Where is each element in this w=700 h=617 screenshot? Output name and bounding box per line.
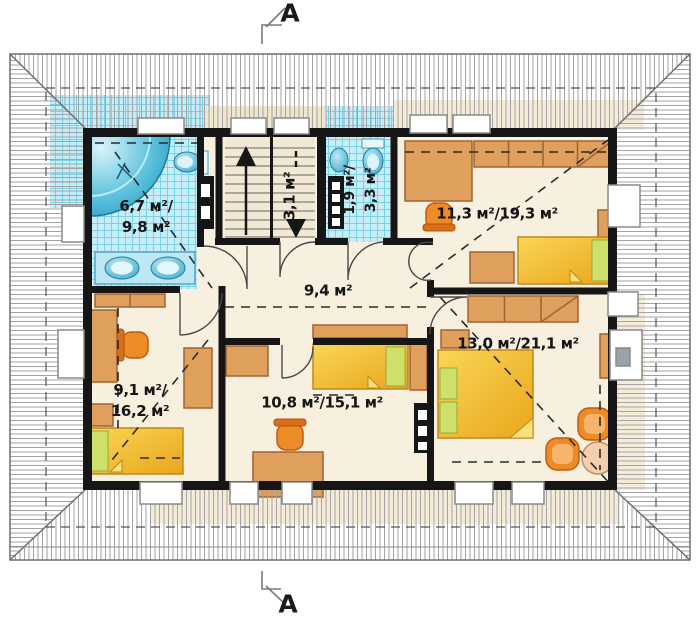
wc-area-label: 1,9 м²/ 3,3 м² (340, 165, 382, 215)
section-marker-bottom: A (278, 590, 297, 617)
bathroom-area-label: 6,7 м²/ 9,8 м² (119, 196, 172, 238)
floor-plan-drawing (0, 0, 700, 617)
bedroom-right-area-label: 13,0 м²/21,1 м² (457, 334, 579, 355)
bed-single-icon (518, 237, 612, 284)
bed-single-icon (313, 344, 408, 389)
desk-chair-icon (117, 329, 148, 361)
floor-plan-page: 6,7 м²/ 9,8 м² 3,1 м² 1,9 м²/ 3,3 м² 11,… (0, 0, 700, 617)
staircase-area-label: 3,1 м² (280, 172, 301, 220)
desk-chair-icon (274, 419, 306, 450)
bedroom-bottom-middle-area-label: 10,8 м²/15,1 м² (261, 393, 383, 414)
bed-single-icon (88, 428, 183, 474)
section-marker-top: A (280, 0, 299, 28)
double-sink-vanity-icon (95, 252, 195, 284)
bedroom-top-right-area-label: 11,3 м²/19,3 м² (436, 204, 558, 225)
bed-double-icon (438, 350, 533, 438)
hall-area-label: 9,4 м² (304, 281, 352, 302)
bedroom-bottom-left-area-label: 9,1 м²/ 16,2 м² (111, 380, 169, 422)
